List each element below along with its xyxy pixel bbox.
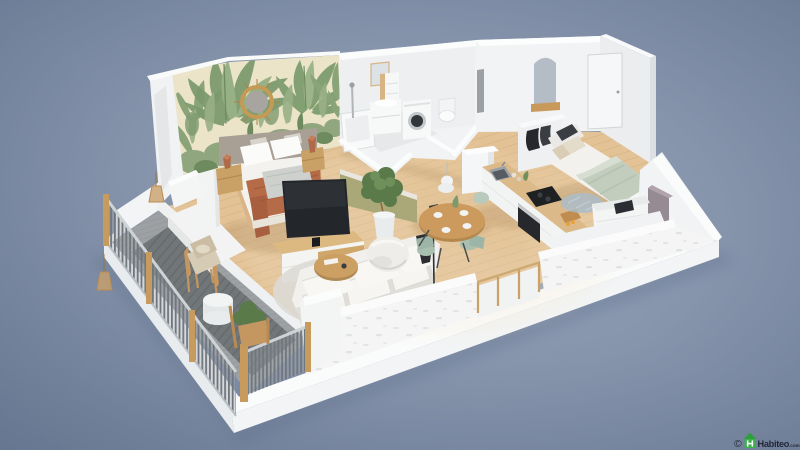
svg-text:Habiteo: Habiteo	[758, 439, 790, 449]
svg-text:.com: .com	[789, 443, 800, 448]
svg-text:©: ©	[734, 438, 742, 450]
